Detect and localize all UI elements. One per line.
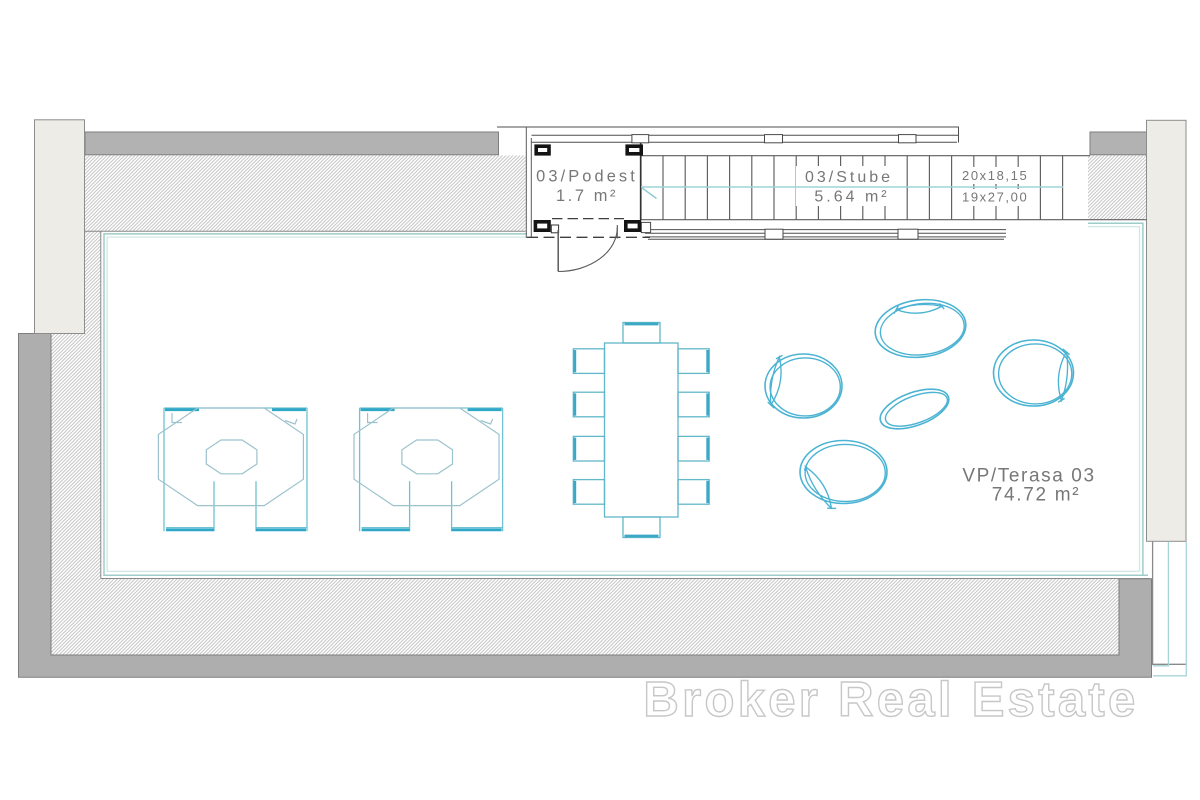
svg-text:74.72 m²: 74.72 m² — [992, 485, 1081, 506]
svg-text:03/Stube: 03/Stube — [805, 169, 893, 186]
svg-text:20x18,15: 20x18,15 — [962, 168, 1028, 183]
svg-text:Broker Real Estate: Broker Real Estate — [643, 673, 1138, 727]
svg-text:19x27,00: 19x27,00 — [962, 190, 1028, 205]
svg-text:VP/Terasa 03: VP/Terasa 03 — [962, 466, 1095, 487]
svg-text:5.64 m²: 5.64 m² — [814, 189, 889, 206]
svg-text:03/Podest: 03/Podest — [536, 168, 638, 186]
svg-text:1.7 m²: 1.7 m² — [556, 187, 618, 205]
